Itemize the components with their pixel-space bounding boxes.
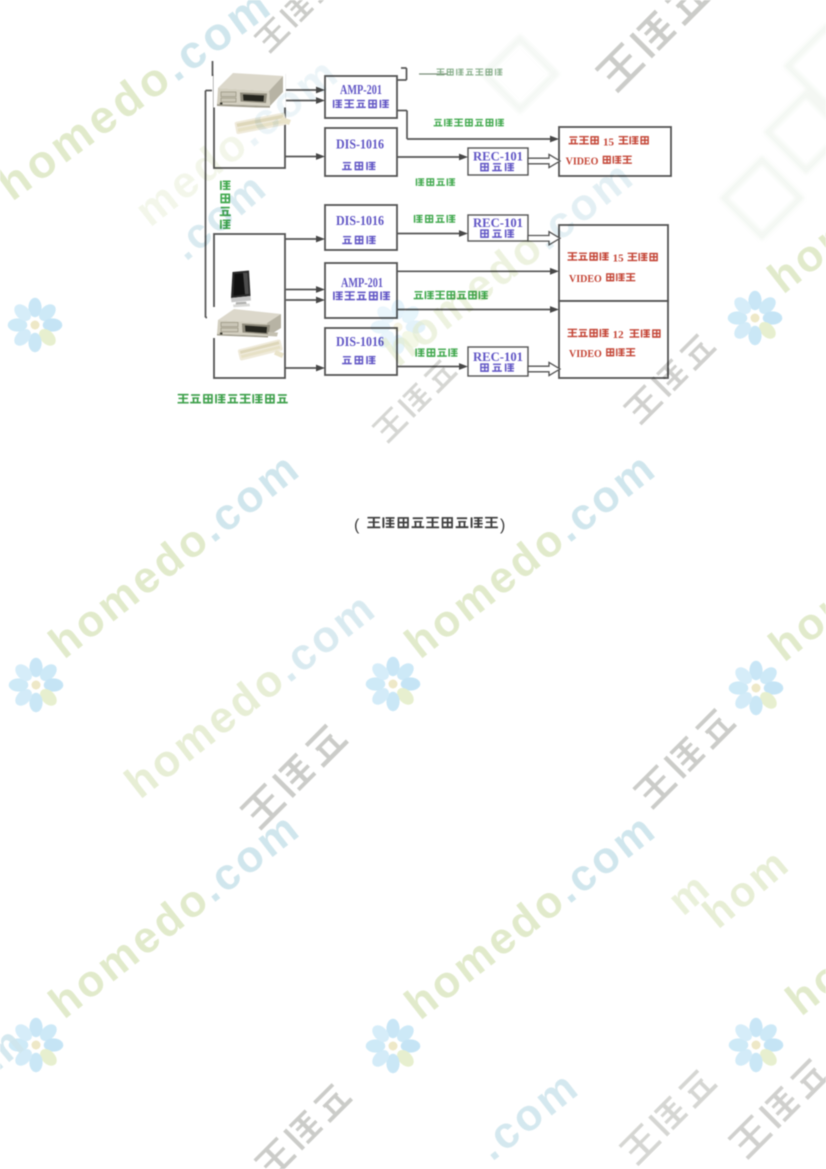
- svg-text:homedo.com: homedo.com: [396, 803, 666, 1029]
- svg-text:homedo.com: homedo.com: [116, 582, 386, 808]
- svg-text:homedo.com: homedo.com: [40, 442, 310, 668]
- svg-text:homedo.com: homedo.com: [40, 802, 310, 1028]
- svg-text:.com: .com: [468, 1061, 589, 1169]
- svg-text:homedo.com: homedo.com: [374, 150, 644, 376]
- svg-text:homedo.com: homedo.com: [760, 445, 826, 671]
- svg-text:homedo.com: homedo.com: [777, 799, 826, 1025]
- svg-text:homedo.com: homedo.com: [396, 442, 666, 668]
